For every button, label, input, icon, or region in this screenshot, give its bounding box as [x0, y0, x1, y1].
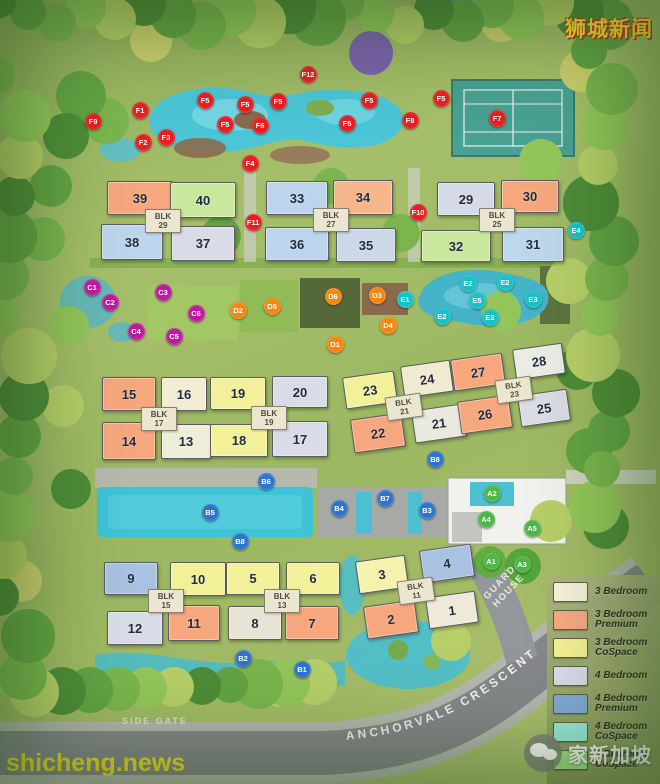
side-gate-label: SIDE GATE	[100, 716, 210, 726]
legend-swatch	[553, 582, 588, 602]
marker-F10: F10	[410, 204, 427, 221]
marker-B3: B3	[419, 502, 436, 519]
legend-swatch	[553, 694, 588, 714]
marker-E2: E2	[460, 275, 477, 292]
watermark-bottom-right-text: 家新加坡	[568, 739, 652, 768]
legend-item: 3 BedroomCoSpace	[553, 637, 660, 659]
marker-A5: A5	[524, 520, 541, 537]
marker-F12: F12	[300, 66, 317, 83]
marker-B4: B4	[331, 500, 348, 517]
marker-E3: E3	[525, 291, 542, 308]
marker-F11: F11	[245, 214, 262, 231]
marker-C3: C3	[155, 284, 172, 301]
marker-C4: C4	[128, 323, 145, 340]
marker-F5: F5	[339, 115, 356, 132]
marker-F5: F5	[237, 96, 254, 113]
legend-swatch	[553, 610, 588, 630]
marker-F1: F1	[132, 102, 149, 119]
marker-F5: F5	[433, 90, 450, 107]
marker-D6: D6	[325, 288, 342, 305]
marker-F5: F5	[270, 93, 287, 110]
marker-B1: B1	[294, 661, 311, 678]
watermark-bottom-right: 家新加坡	[524, 734, 652, 772]
marker-B8: B8	[427, 451, 444, 468]
marker-F3: F3	[158, 129, 175, 146]
marker-E2: E2	[482, 309, 499, 326]
marker-C2: C2	[102, 294, 119, 311]
wechat-icon	[524, 734, 562, 772]
legend-item: 4 BedroomPremium	[553, 693, 660, 715]
marker-C5: C5	[166, 328, 183, 345]
legend-item: 4 Bedroom	[553, 665, 660, 687]
legend-item: 3 BedroomPremium	[553, 609, 660, 631]
watermark-bottom-left: shicheng.news	[6, 749, 185, 778]
marker-F5: F5	[361, 92, 378, 109]
marker-F4: F4	[242, 155, 259, 172]
marker-F8: F8	[402, 112, 419, 129]
marker-D3: D3	[369, 287, 386, 304]
marker-F6: F6	[252, 117, 269, 134]
marker-C6: C6	[188, 305, 205, 322]
legend-item: 3 Bedroom	[553, 581, 660, 603]
marker-D2: D2	[230, 302, 247, 319]
marker-D1: D1	[327, 336, 344, 353]
marker-D5: D5	[264, 298, 281, 315]
legend-label: 4 Bedroom	[595, 671, 647, 681]
marker-E2: E2	[434, 308, 451, 325]
legend-label: 3 Bedroom	[595, 587, 647, 597]
marker-B2: B2	[235, 650, 252, 667]
legend-label: 3 BedroomPremium	[595, 610, 647, 630]
marker-E5: E5	[469, 292, 486, 309]
marker-E4: E4	[568, 222, 585, 239]
watermark-top-right: 狮城新闻	[565, 13, 653, 43]
marker-F5: F5	[217, 116, 234, 133]
marker-B5: B5	[202, 504, 219, 521]
marker-E1: E1	[397, 291, 414, 308]
marker-A4: A4	[478, 511, 495, 528]
marker-F7: F7	[489, 110, 506, 127]
legend-swatch	[553, 666, 588, 686]
marker-B6: B6	[258, 473, 275, 490]
site-plan-map: ANCHORVALE CRESCENT 39403837333436352930…	[0, 0, 660, 784]
marker-E2: E2	[497, 274, 514, 291]
marker-A2: A2	[484, 485, 501, 502]
marker-C1: C1	[84, 279, 101, 296]
legend-label: 3 BedroomCoSpace	[595, 638, 647, 658]
marker-D4: D4	[380, 317, 397, 334]
marker-A1: A1	[483, 553, 500, 570]
marker-B8: B8	[232, 533, 249, 550]
marker-F2: F2	[135, 134, 152, 151]
legend-swatch	[553, 638, 588, 658]
marker-F9: F9	[85, 113, 102, 130]
marker-B7: B7	[377, 490, 394, 507]
legend-label: 4 BedroomPremium	[595, 694, 647, 714]
marker-F5: F5	[197, 92, 214, 109]
